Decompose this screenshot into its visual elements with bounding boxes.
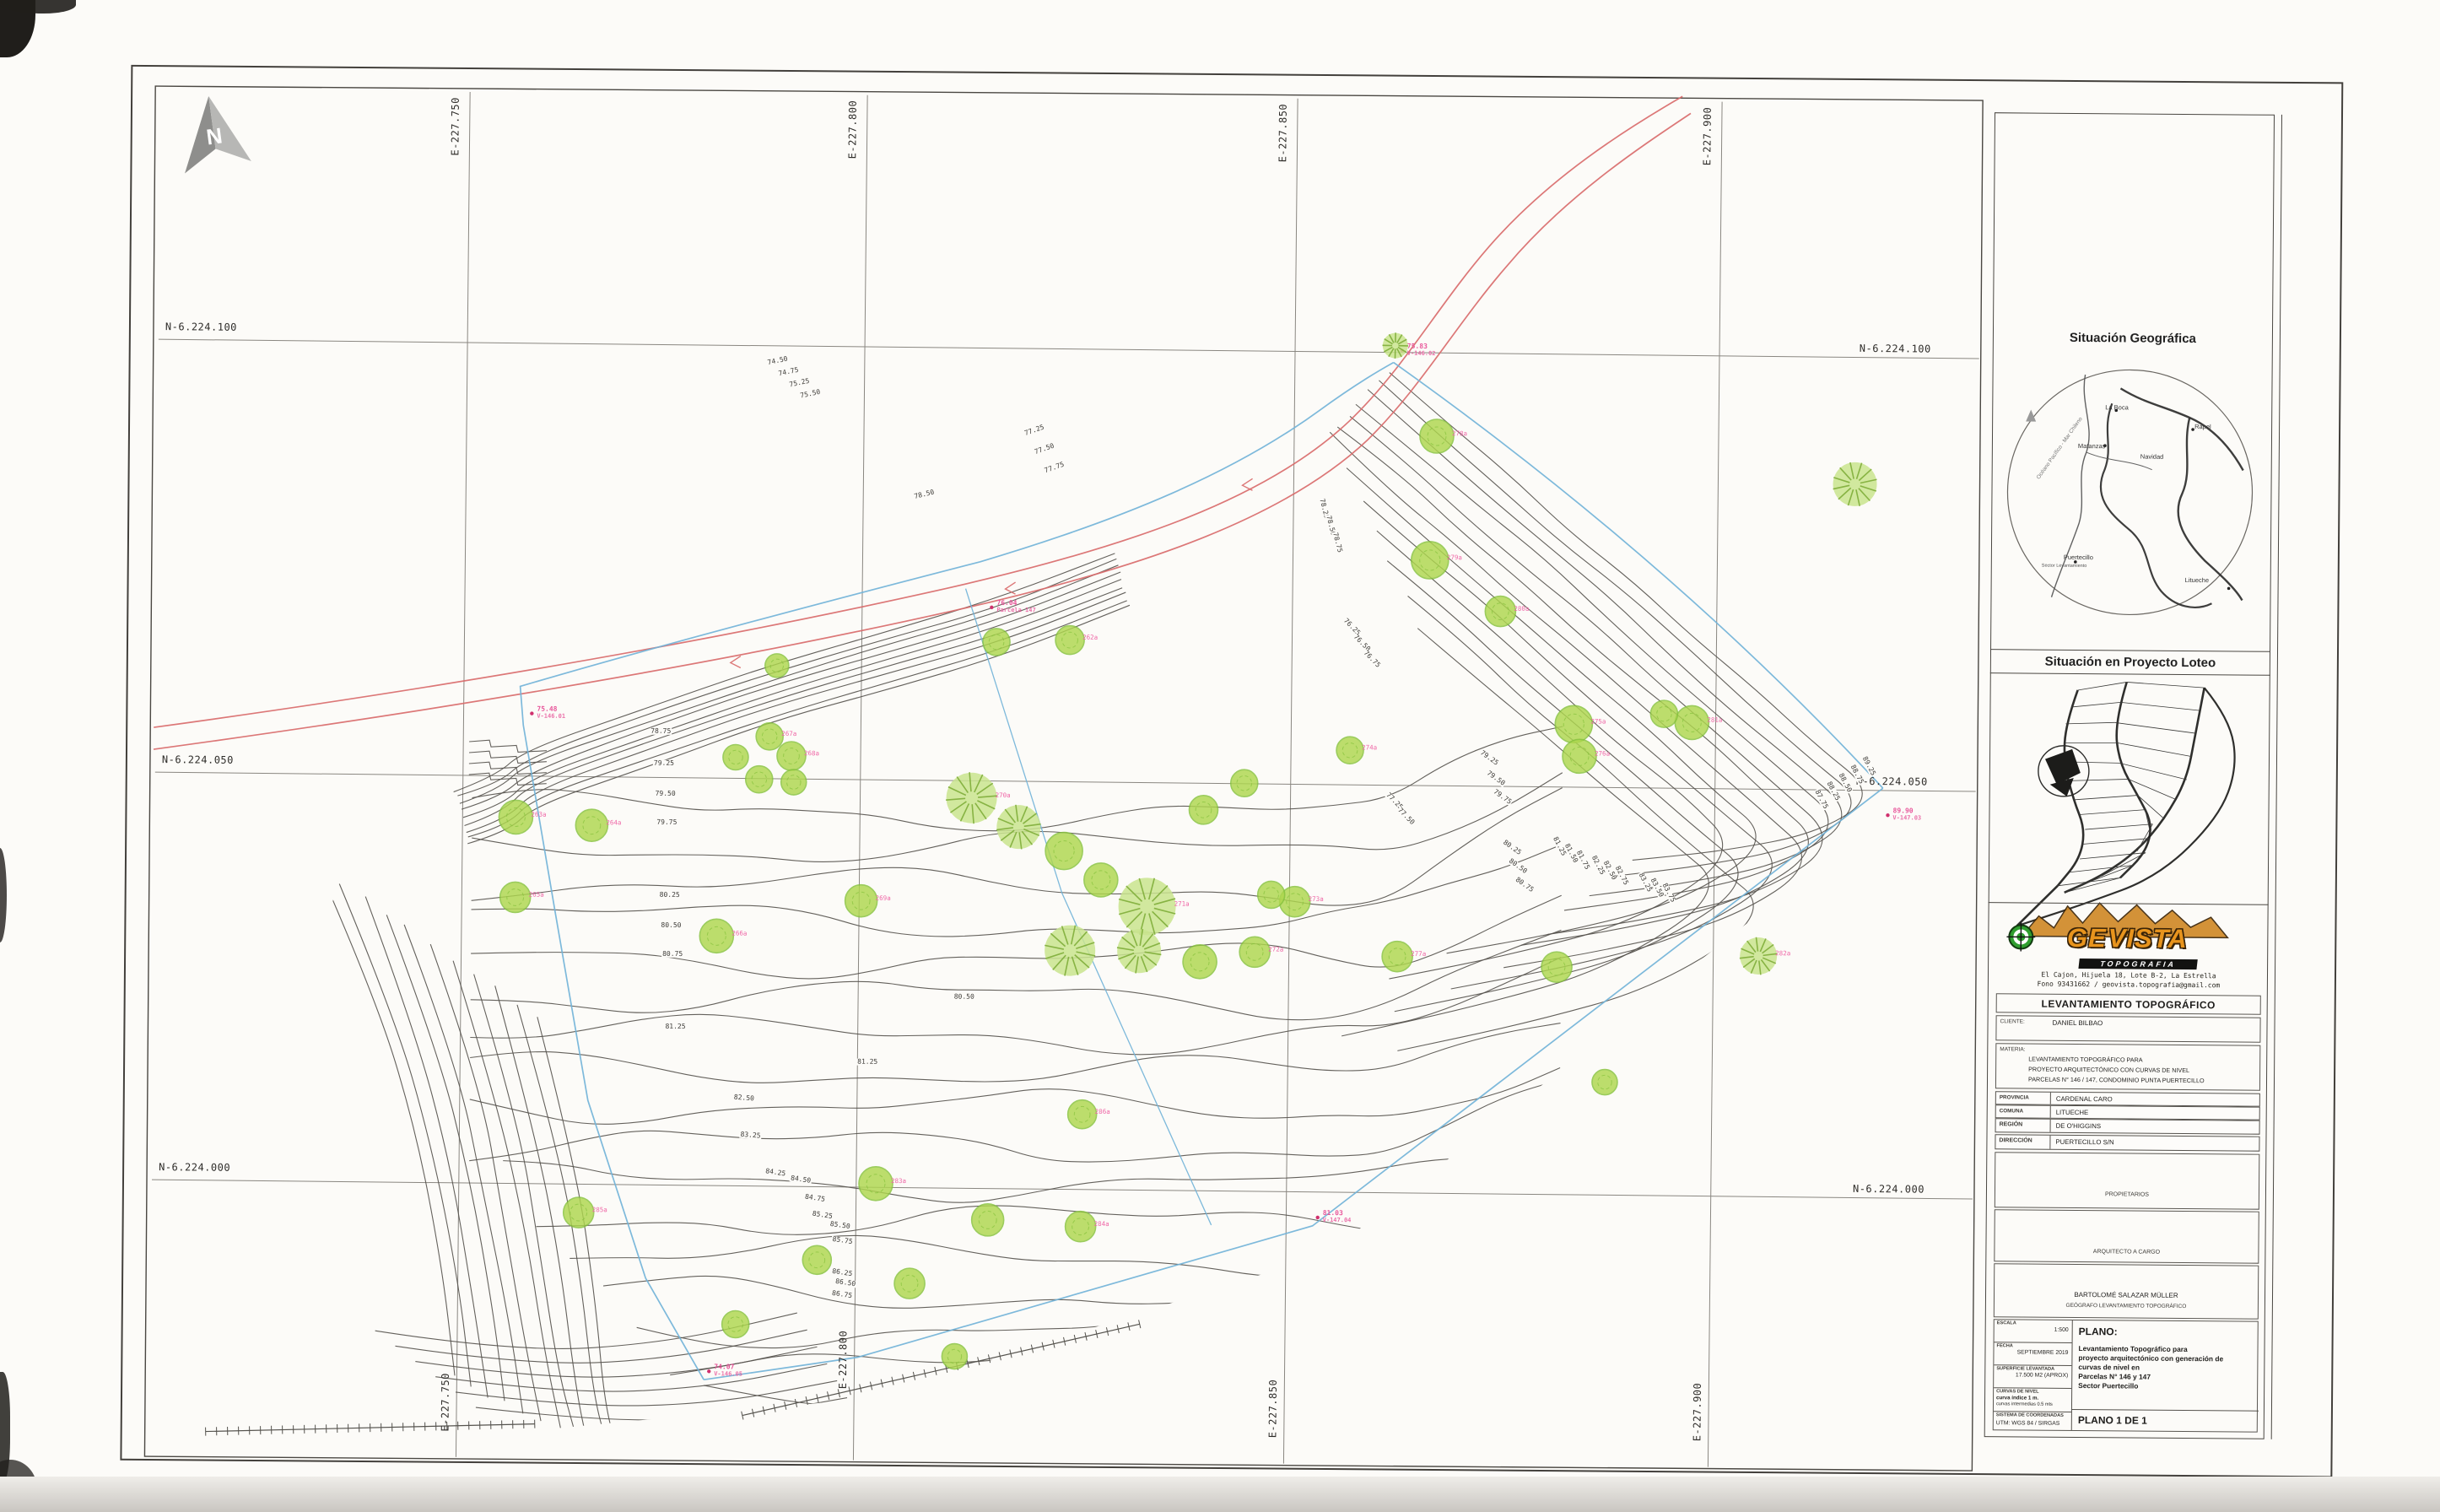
tree-symbol (500, 882, 531, 912)
provincia-value: CARDENAL CARO (2051, 1093, 2116, 1105)
tree-symbol (1183, 945, 1217, 979)
tree-label: 263a (531, 811, 546, 818)
coordinate-grid (149, 89, 1981, 1469)
tree-label: 271a (1174, 900, 1190, 908)
arquitecto-label: ARQUITECTO A CARGO (1995, 1248, 2258, 1255)
scanner-edge-band (0, 1477, 2440, 1512)
tree-symbol (765, 654, 789, 678)
vertex-name-label: V-147.04 (1323, 1217, 1352, 1224)
region-row: REGIÓN DE O'HIGGINS (1995, 1118, 2260, 1134)
propietarios-label: PROPIETARIOS (1995, 1191, 2259, 1198)
geovista-logo: GE VISTA (2006, 922, 2248, 954)
easting-label: E-227.750 (449, 97, 462, 156)
materia-line-2: PROYECTO ARQUITECTÓNICO CON CURVAS DE NI… (2028, 1066, 2189, 1074)
vertex-elevation-label: 76.04 (996, 599, 1017, 607)
direccion-row: DIRECCIÓN PUERTECILLO S/N (1995, 1134, 2259, 1151)
comuna-label: COMUNA (1996, 1105, 2051, 1118)
northing-label: N-6.224.050 (162, 753, 234, 766)
tree-label: 267a (781, 730, 796, 737)
tussock-tree-symbol (996, 805, 1041, 850)
tree-symbol (1675, 705, 1709, 739)
tussock-tree-symbol (1117, 929, 1162, 974)
levantamiento-header: LEVANTAMIENTO TOPOGRÁFICO (1996, 993, 2261, 1014)
tree-label: 276a (1595, 749, 1610, 757)
tree-symbol (859, 1167, 893, 1201)
contour-elevation-label: 81.25 (664, 1023, 686, 1030)
vertex-elevation-label: 75.83 (1407, 343, 1428, 350)
easting-label: E-227.900 (1701, 107, 1714, 166)
contour-elevation-label: 79.75 (656, 819, 677, 826)
escala-value: 1:500 (1995, 1326, 2072, 1333)
cliente-box: CLIENTE: DANIEL BILBAO (1995, 1015, 2260, 1042)
tree-label: 273a (1309, 895, 1324, 903)
tree-symbol (894, 1268, 925, 1299)
tree-symbol (723, 744, 748, 769)
tree-label: 269a (876, 894, 891, 902)
region-value: DE O'HIGGINS (2051, 1120, 2105, 1132)
materia-line-3: PARCELAS N° 146 / 147, CONDOMINIO PUNTA … (2028, 1076, 2205, 1085)
vertex-elevation-label: 74.07 (714, 1363, 734, 1370)
vertex-name-label: V-147.03 (1892, 814, 1921, 822)
logo-text-ge: GE (2067, 923, 2107, 953)
contour-lines (314, 364, 1865, 1476)
map-frame (144, 86, 1983, 1471)
scanned-topographic-plan: N E-227.750E-227.750E-227.800E-227.800E-… (0, 0, 2440, 1512)
curvas-label: CURVAS DE NIVEL (1994, 1388, 2071, 1395)
coastal-road-lines (154, 84, 1691, 761)
tree-symbol (1336, 737, 1363, 764)
sistema-label: SISTEMA DE COORDENADAS (1994, 1412, 2071, 1418)
vertex-name-label: V-146.01 (537, 713, 565, 721)
tree-symbol (1412, 542, 1449, 579)
sistema-value: UTM: WGS 84 / SIRGAS (1994, 1417, 2071, 1427)
tree-symbol (1055, 625, 1084, 654)
contour-elevation-label: 78.75 (650, 728, 672, 735)
vertex-name-label: V-146.05 (714, 1370, 742, 1378)
vertex-elevation-label: 75.48 (537, 705, 557, 713)
tree-symbol (499, 800, 532, 834)
tree-symbol (1189, 796, 1217, 824)
tree-label: 283a (891, 1177, 906, 1185)
tree-symbol (575, 809, 607, 841)
tree-symbol (1592, 1069, 1617, 1094)
tree-symbol (1068, 1100, 1097, 1129)
materia-line-1: LEVANTAMIENTO TOPOGRÁFICO PARA (2028, 1056, 2142, 1064)
easting-label: E-227.800 (837, 1331, 850, 1390)
contour-elevation-label: 81.25 (856, 1059, 878, 1066)
cliente-label: CLIENTE: (2000, 1018, 2025, 1024)
cliente-value: DANIEL BILBAO (2053, 1019, 2103, 1027)
north-arrow-icon: N (175, 91, 252, 174)
logo-target-icon (2006, 922, 2035, 951)
easting-label: E-227.850 (1277, 104, 1289, 163)
tree-symbol (1541, 952, 1572, 982)
region-label: REGIÓN (1996, 1119, 2051, 1132)
tree-symbol (1084, 863, 1118, 897)
vertex-name-label: V-146.02 (1407, 350, 1436, 358)
tree-label: 265a (529, 891, 544, 899)
tree-label: 274a (1362, 743, 1377, 751)
fecha-value: SEPTIEMBRE 2019 (1994, 1348, 2071, 1356)
direccion-label: DIRECCIÓN (1995, 1135, 2050, 1149)
northing-label: N-6.224.100 (165, 321, 237, 333)
contour-elevation-label: 79.25 (653, 760, 675, 767)
vertex-elevation-label: 89.90 (1892, 807, 1913, 814)
arquitecto-box: ARQUITECTO A CARGO (1994, 1209, 2259, 1263)
tree-symbol (1045, 832, 1082, 869)
tree-label: 272a (1268, 945, 1283, 953)
tree-label: 286a (1095, 1108, 1110, 1115)
easting-label: E-227.800 (846, 100, 859, 159)
tree-symbol (1555, 705, 1592, 742)
tree-symbol (1239, 937, 1270, 967)
vertex-elevation-label: 81.03 (1323, 1209, 1343, 1217)
contour-elevation-label: 80.75 (661, 951, 683, 958)
easting-label: E-227.750 (439, 1373, 451, 1432)
propietarios-box: PROPIETARIOS (1995, 1152, 2260, 1209)
tree-symbol (983, 629, 1010, 656)
northing-label: N-6.224.100 (1860, 343, 1931, 355)
plano-label: PLANO: (2072, 1320, 2259, 1339)
tree-symbol (1563, 739, 1596, 773)
easting-label: E-227.900 (1691, 1383, 1703, 1442)
tree-label: 262a (1082, 634, 1098, 641)
tree-label: 279a (1447, 553, 1462, 561)
tree-symbol (1258, 881, 1285, 908)
comuna-value: LITUECHE (2051, 1106, 2092, 1118)
surveyor-box: BARTOLOMÉ SALAZAR MÜLLER GEÓGRAFO LEVANT… (1994, 1263, 2259, 1319)
tree-label: 264a (606, 818, 621, 826)
property-boundary (515, 342, 1893, 1389)
geo-situation-title: Situación Geográfica (1993, 330, 2273, 347)
tussock-tree-symbol (1118, 877, 1176, 936)
tree-label: 278a (1452, 429, 1467, 437)
contour-elevation-label: 80.50 (660, 922, 682, 929)
curvas-value-1: curva índice 1 m. (1994, 1394, 2071, 1401)
fence-lines (205, 1313, 1140, 1444)
tree-label: 280a (1514, 605, 1529, 613)
drawing-info-table: ESCALA 1:500 FECHA SEPTIEMBRE 2019 SUPER… (1993, 1319, 2259, 1432)
logo-banner: TOPOGRAFIA (2078, 958, 2197, 969)
provincia-label: PROVINCIA (1996, 1092, 2051, 1104)
tussock-tree-symbol (1833, 462, 1876, 506)
tree-label: 284a (1094, 1220, 1109, 1228)
tussock-tree-symbol (1740, 937, 1778, 975)
tree-symbol (845, 885, 877, 917)
tree-label: 266a (731, 929, 747, 937)
contour-elevation-label: 80.50 (953, 994, 975, 1001)
northing-label: N-6.224.000 (159, 1161, 230, 1174)
tussock-tree-symbol (946, 772, 997, 823)
northing-label: N-6.224.050 (1856, 775, 1928, 788)
surveyor-role: GEÓGRAFO LEVANTAMIENTO TOPOGRÁFICO (1995, 1302, 2258, 1309)
loteo-situation-title: Situación en Proyecto Loteo (1990, 654, 2270, 671)
plano-desc-1: Levantamiento Topográfico para (2071, 1337, 2259, 1355)
materia-label: MATERIA: (2000, 1046, 2025, 1052)
easting-label: E-227.850 (1266, 1380, 1279, 1439)
tree-label: 270a (996, 791, 1011, 799)
tree-symbol (972, 1204, 1004, 1236)
materia-box: MATERIA: LEVANTAMIENTO TOPOGRÁFICO PARA … (1995, 1043, 2260, 1090)
tree-symbols (494, 326, 1878, 1376)
direccion-value: PUERTECILLO S/N (2050, 1136, 2117, 1150)
tree-symbol (1382, 942, 1412, 972)
tree-label: 282a (1775, 949, 1790, 957)
svg-text:N: N (205, 122, 224, 149)
surveyor-name: BARTOLOMÉ SALAZAR MÜLLER (1995, 1290, 2258, 1299)
tree-symbol (756, 723, 783, 750)
contour-elevation-label: 79.50 (655, 791, 677, 797)
tussock-tree-symbol (1045, 925, 1095, 975)
plano-desc-5: Sector Puertecillo (2071, 1381, 2259, 1392)
tree-label: 275a (1590, 717, 1606, 725)
tree-symbol (781, 769, 807, 795)
tree-symbol (1065, 1212, 1095, 1242)
tree-symbol (1485, 596, 1515, 626)
tree-symbol (699, 919, 733, 953)
tree-symbol (1231, 769, 1258, 796)
superficie-value: 17.500 M2 (APROX) (1994, 1371, 2071, 1379)
tree-symbol (1420, 419, 1454, 453)
tree-label: 285a (592, 1206, 607, 1213)
northing-label: N-6.224.000 (1853, 1183, 1924, 1196)
tree-symbol (942, 1343, 967, 1369)
tussock-tree-symbol (1382, 332, 1408, 359)
plan-sheet: N E-227.750E-227.750E-227.800E-227.800E-… (0, 0, 2440, 1512)
logo-text-vista: VISTA (2108, 923, 2188, 954)
tree-label: 268a (804, 749, 819, 757)
contour-elevation-label: 80.25 (659, 892, 681, 899)
plano-number: PLANO 1 DE 1 (2078, 1414, 2147, 1427)
tree-symbol (802, 1245, 831, 1274)
curvas-value-2: curvas intermedias 0.5 mts (1994, 1401, 2071, 1407)
tree-symbol (777, 742, 806, 770)
tree-label: 281a (1707, 716, 1722, 724)
tree-symbol (722, 1310, 749, 1337)
vertex-name-label: Parcela 147 (996, 607, 1035, 614)
tree-symbol (746, 766, 773, 793)
tree-label: 277a (1411, 950, 1426, 958)
tree-symbol (1650, 700, 1677, 727)
tree-symbol (564, 1197, 594, 1228)
superficie-label: SUPERFICIE LEVANTADA (1994, 1365, 2071, 1372)
